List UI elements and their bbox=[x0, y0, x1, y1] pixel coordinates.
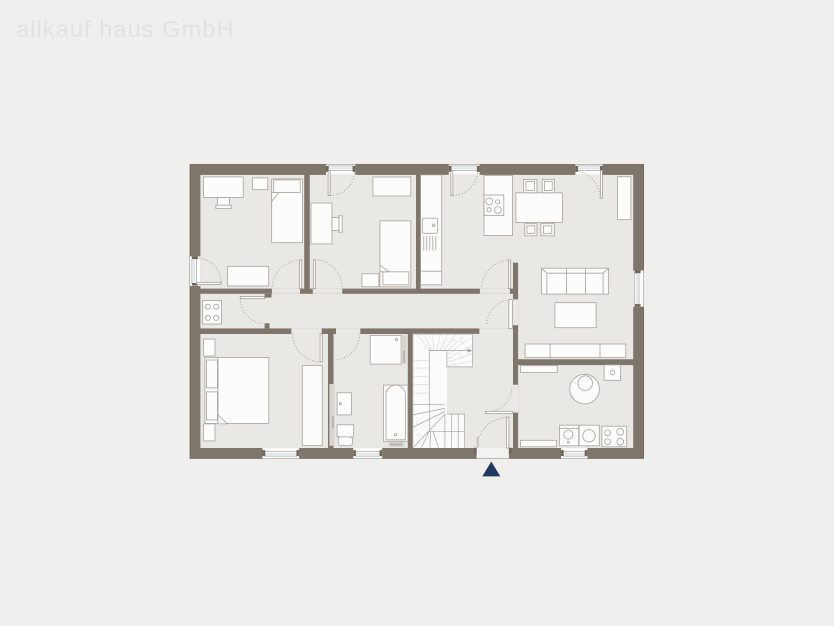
svg-text:bauseits: bauseits bbox=[402, 350, 406, 362]
svg-text:bauseits: bauseits bbox=[475, 436, 479, 447]
svg-text:allkauf haus GmbH: allkauf haus GmbH bbox=[16, 16, 235, 42]
svg-text:bauseits: bauseits bbox=[331, 416, 335, 428]
svg-text:bauseits: bauseits bbox=[390, 443, 402, 447]
